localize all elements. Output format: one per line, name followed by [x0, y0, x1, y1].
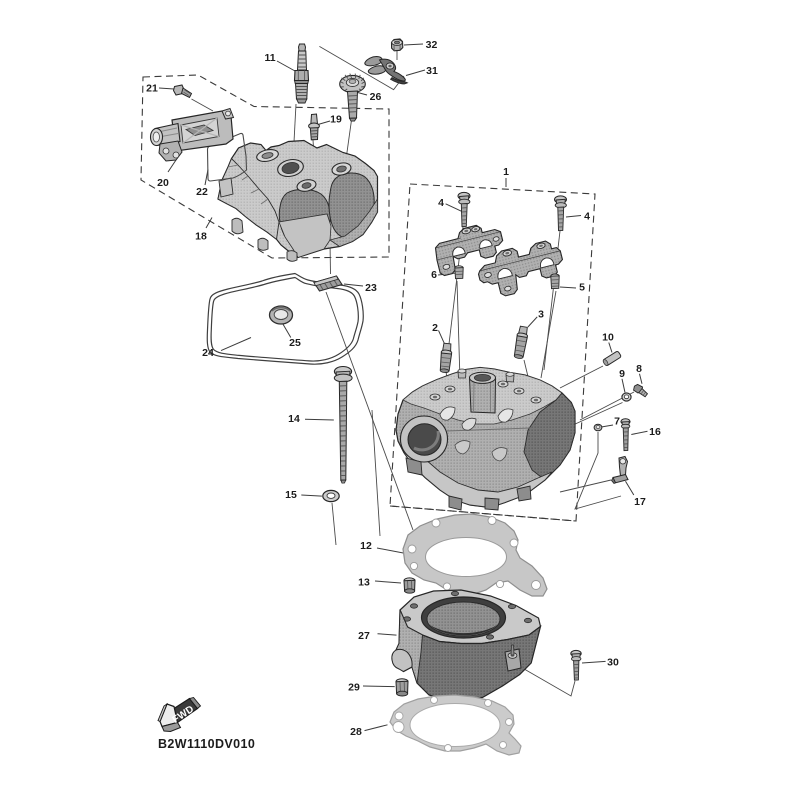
svg-text:29: 29 — [348, 682, 360, 694]
svg-text:2: 2 — [432, 322, 438, 334]
svg-text:21: 21 — [146, 83, 158, 95]
svg-text:B2W1110DV010: B2W1110DV010 — [158, 737, 255, 751]
svg-text:15: 15 — [285, 489, 297, 501]
svg-text:25: 25 — [289, 337, 301, 349]
svg-text:17: 17 — [634, 496, 646, 508]
svg-text:10: 10 — [602, 332, 614, 344]
svg-text:14: 14 — [288, 413, 300, 425]
svg-text:20: 20 — [157, 177, 169, 189]
svg-text:3: 3 — [538, 309, 544, 321]
svg-text:4: 4 — [438, 197, 444, 209]
svg-text:23: 23 — [365, 282, 377, 294]
svg-text:19: 19 — [330, 114, 342, 126]
svg-text:12: 12 — [360, 540, 372, 552]
svg-text:7: 7 — [614, 416, 620, 428]
svg-text:24: 24 — [202, 347, 214, 359]
svg-text:27: 27 — [358, 630, 370, 642]
svg-text:18: 18 — [195, 231, 207, 243]
svg-text:22: 22 — [196, 186, 208, 198]
svg-text:1: 1 — [503, 166, 509, 178]
svg-text:8: 8 — [636, 363, 642, 375]
svg-text:11: 11 — [264, 52, 275, 64]
svg-text:16: 16 — [649, 426, 661, 438]
svg-text:31: 31 — [426, 65, 438, 77]
svg-text:4: 4 — [584, 211, 590, 223]
svg-text:26: 26 — [370, 91, 382, 103]
svg-text:28: 28 — [350, 726, 362, 738]
svg-text:30: 30 — [607, 657, 619, 669]
svg-text:9: 9 — [619, 368, 625, 380]
svg-text:13: 13 — [358, 577, 370, 589]
svg-text:5: 5 — [579, 282, 585, 294]
svg-text:6: 6 — [431, 269, 437, 281]
svg-text:32: 32 — [426, 39, 438, 51]
